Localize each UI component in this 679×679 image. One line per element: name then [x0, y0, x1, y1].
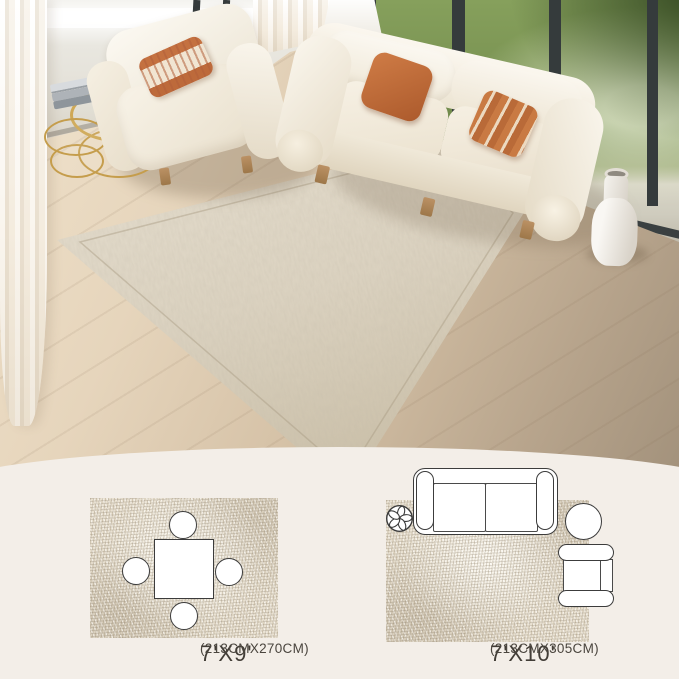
armchair-top-view-icon [556, 544, 618, 608]
sofa-leg [314, 164, 330, 184]
vase-body [590, 197, 638, 267]
dining-chair-icon [215, 558, 243, 586]
armchair-backrest-line [600, 559, 613, 592]
sofa-cushion-line [433, 483, 486, 532]
sofa-leg [519, 220, 535, 240]
armchair-arm-line [558, 544, 614, 561]
size-cm-text: (213CMX305CM) [490, 641, 599, 656]
armchair-cushion-line [563, 559, 601, 592]
sofa-cushion-line [485, 483, 538, 532]
dining-table-icon [154, 539, 214, 599]
armchair-leg [241, 155, 253, 173]
dining-chair-icon [122, 557, 150, 585]
living-room-photo [0, 0, 679, 470]
product-image: 7'X9' (213CMX270CM) 7'X10' (213CMX305CM) [0, 0, 679, 679]
armchair-leg [159, 167, 171, 185]
round-side-table-icon [565, 503, 602, 540]
sofa-arm-line [416, 471, 434, 530]
armchair [96, 16, 286, 191]
curtain-left [0, 0, 47, 426]
dining-chair-icon [170, 602, 198, 630]
potted-plant-icon [385, 504, 414, 533]
armchair-arm-line [558, 590, 614, 607]
sofa-top-view-icon [413, 468, 558, 535]
ceramic-vase [590, 167, 639, 269]
sofa-leg [420, 197, 436, 217]
size-cm-text: (213CMX270CM) [200, 641, 309, 656]
dining-chair-icon [169, 511, 197, 539]
sofa-arm-line [536, 471, 554, 530]
